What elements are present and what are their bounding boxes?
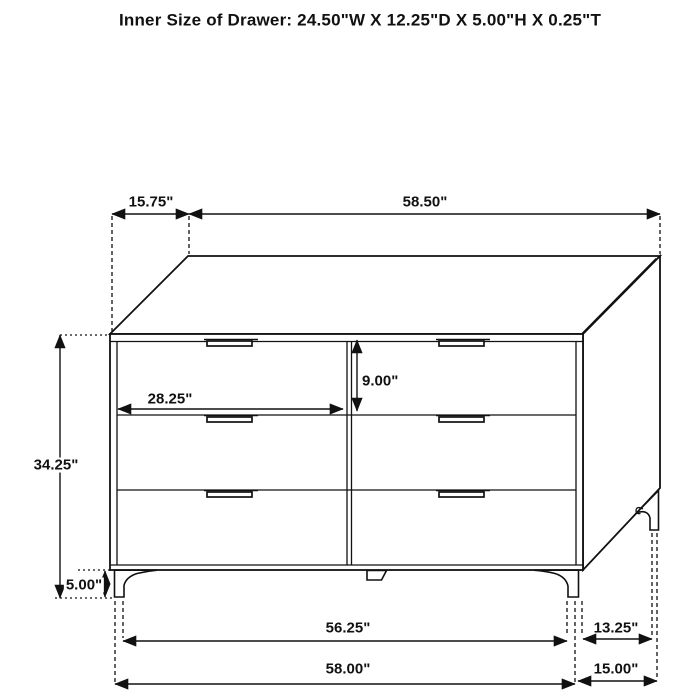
dim-label-top-depth: 15.75": [129, 195, 174, 210]
dim-label-overall-height: 34.25": [32, 458, 81, 473]
dim-label-drawer-height: 9.00": [362, 374, 398, 389]
front-left-leg: [115, 570, 158, 597]
front-right-leg: [534, 570, 579, 597]
dim-label-overall-width: 58.00": [326, 662, 371, 677]
center-support-foot: [367, 571, 387, 581]
dim-label-side-leg-span: 13.25": [594, 621, 639, 636]
drawer-handle: [436, 340, 490, 347]
dresser-line-art: [0, 0, 700, 700]
cabinet: [110, 256, 660, 597]
drawer-handle: [204, 340, 258, 347]
drawer-handle: [436, 491, 490, 498]
drawer-handle: [204, 416, 258, 423]
drawer-handle: [436, 416, 490, 423]
drawer-handle: [204, 491, 258, 498]
dim-label-top-width: 58.50": [403, 195, 448, 210]
dim-label-leg-height: 5.00": [64, 578, 104, 593]
page-title: Inner Size of Drawer: 24.50"W X 12.25"D …: [119, 12, 601, 29]
diagram-canvas: Inner Size of Drawer: 24.50"W X 12.25"D …: [0, 0, 700, 700]
top-face: [110, 256, 660, 334]
dim-label-front-leg-span: 56.25": [326, 621, 371, 636]
dim-label-overall-depth: 15.00": [594, 662, 639, 677]
dim-label-drawer-width: 28.25": [148, 392, 193, 407]
